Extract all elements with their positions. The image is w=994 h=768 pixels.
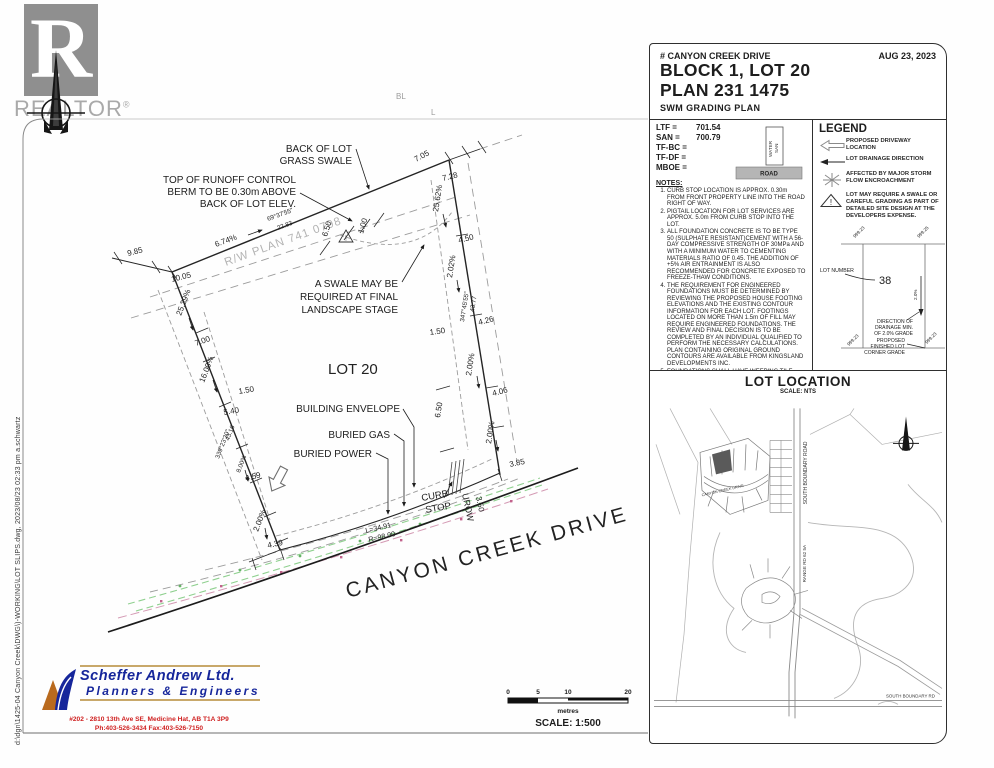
title-block-header: # CANYON CREEK DRIVE AUG 23, 2023 BLOCK … — [650, 44, 946, 120]
lot-location-map: SOUTH BOUNDARY ROAD RANGE RD 62 5A CANYO… — [650, 396, 946, 743]
svg-text:!: ! — [830, 198, 832, 207]
canyon-creek-subdivision — [700, 439, 770, 515]
svg-text:1.00: 1.00 — [356, 217, 369, 235]
svg-text:GRASS SWALE: GRASS SWALE — [280, 156, 353, 167]
fragment-text: L — [431, 108, 436, 117]
svg-text:999.25: 999.25 — [916, 224, 930, 238]
firm-phone: Ph:403-526-3434 Fax:403-526-7150 — [38, 725, 260, 734]
notes-heading: NOTES: — [656, 180, 808, 187]
svg-text:6.50: 6.50 — [433, 401, 444, 418]
title-block-panel: # CANYON CREEK DRIVE AUG 23, 2023 BLOCK … — [649, 43, 947, 744]
legend-item-label: LOT MAY REQUIRE A SWALE OR CAREFUL GRADI… — [846, 192, 942, 219]
map-label: RANGE RD 62 5A — [802, 544, 807, 582]
plan-subtitle: SWM GRADING PLAN — [660, 103, 936, 113]
svg-text:999.23: 999.23 — [852, 224, 866, 238]
note-item: THE REQUIREMENT FOR ENGINEERED FOUNDATIO… — [667, 283, 806, 368]
svg-text:10.05: 10.05 — [170, 270, 192, 284]
elevation-table: LTF =701.54 SAN =700.79 TF-BC = TF-DF = … — [656, 123, 808, 179]
map-label: SOUTH BOUNDARY ROAD — [803, 441, 809, 504]
proposed-driveway-arrow — [264, 464, 292, 495]
svg-text:SAN: SAN — [774, 144, 779, 153]
plan-sheet: d:\dgn\1425-04 Canyon Creek\DWG\)-WORKIN… — [0, 0, 994, 768]
svg-text:BACK OF LOT: BACK OF LOT — [286, 144, 352, 155]
subject-lot-highlight — [712, 450, 732, 475]
block-lot-title: BLOCK 1, LOT 20 — [660, 61, 936, 81]
svg-text:9.85: 9.85 — [126, 245, 144, 258]
svg-text:CORNER GRADE: CORNER GRADE — [864, 350, 906, 356]
svg-text:4.59: 4.59 — [244, 470, 262, 483]
svg-text:2.00%: 2.00% — [464, 352, 476, 376]
svg-text:TOP OF RUNOFF CONTROL: TOP OF RUNOFF CONTROL — [163, 175, 296, 186]
firm-name: Scheffer Andrew Ltd. — [80, 668, 260, 684]
svg-text:LOT NUMBER: LOT NUMBER — [820, 268, 854, 274]
svg-text:BURIED GAS: BURIED GAS — [328, 430, 390, 441]
svg-text:999.23: 999.23 — [846, 332, 860, 346]
firm-block: Scheffer Andrew Ltd. Planners & Engineer… — [38, 664, 260, 733]
svg-text:SCALE: 1:500: SCALE: 1:500 — [535, 718, 601, 729]
note-item: PIGTAIL LOCATION FOR LOT SERVICES ARE AP… — [667, 209, 806, 229]
svg-text:10: 10 — [564, 689, 572, 696]
svg-text:BURIED POWER: BURIED POWER — [294, 449, 372, 460]
map-label: SOUTH BOUNDARY RD — [886, 694, 935, 699]
svg-text:!: ! — [345, 236, 347, 243]
firm-tagline: Planners & Engineers — [80, 684, 260, 698]
driveway-icon — [819, 139, 846, 152]
svg-text:38: 38 — [879, 275, 891, 287]
urow-label: UROW — [460, 492, 476, 522]
svg-text:BUILDING ENVELOPE: BUILDING ENVELOPE — [296, 404, 400, 415]
legend-panel: LEGEND PROPOSED DRIVEWAY LOCATION LOT DR… — [812, 120, 946, 370]
fragment-text: BL — [396, 92, 406, 101]
right-of-way-dashed-lines — [131, 135, 522, 592]
svg-text:A SWALE MAY BE: A SWALE MAY BE — [315, 279, 399, 290]
curb-stop-ticks — [448, 459, 464, 496]
svg-text:16.00%: 16.00% — [197, 355, 215, 384]
water-san-road-diagram: WATER SAN ROAD — [732, 125, 806, 181]
legend-sample-lot-diagram: 999.23 999.25 999.23 999.23 LOT NUMBER 3… — [819, 224, 945, 358]
svg-text:ROAD: ROAD — [760, 172, 778, 178]
svg-text:1.50: 1.50 — [238, 384, 255, 396]
legend-item-label: LOT DRAINAGE DIRECTION — [846, 156, 924, 163]
drainage-direction-icon — [819, 157, 846, 167]
legend-item-label: AFFECTED BY MAJOR STORM FLOW ENCROACHMEN… — [846, 171, 942, 185]
svg-text:metres: metres — [557, 708, 579, 715]
note-item: CURB STOP LOCATION IS APPROX. 0.30m FROM… — [667, 188, 806, 208]
plan-number: PLAN 231 1475 — [660, 81, 936, 101]
warning-triangle-icon: ! — [819, 193, 846, 208]
notes-column: LTF =701.54 SAN =700.79 TF-BC = TF-DF = … — [650, 120, 812, 370]
svg-text:4.50: 4.50 — [457, 232, 475, 245]
storm-flow-icon — [819, 172, 846, 188]
svg-text:999.23: 999.23 — [924, 330, 938, 344]
svg-text:BACK OF LOT ELEV.: BACK OF LOT ELEV. — [200, 199, 296, 210]
note-item: ALL FOUNDATION CONCRETE IS TO BE TYPE 50… — [667, 229, 806, 281]
svg-text:22.83: 22.83 — [276, 220, 294, 232]
legend-heading: LEGEND — [819, 123, 942, 135]
sheet-border — [23, 119, 648, 733]
svg-text:25.29%: 25.29% — [174, 288, 192, 317]
lot-location-heading: LOT LOCATION — [650, 374, 946, 389]
plan-dimensions: 9.85 10.05 6.74% 69°37'55" 22.83 7.05 7.… — [126, 148, 526, 550]
svg-text:0: 0 — [506, 689, 510, 696]
svg-text:7.05: 7.05 — [413, 148, 431, 164]
map-north-arrow-icon — [893, 417, 919, 451]
lot-label: LOT 20 — [328, 361, 378, 378]
svg-text:7.28: 7.28 — [441, 170, 459, 183]
svg-text:REQUIRED AT FINAL: REQUIRED AT FINAL — [300, 292, 398, 303]
south-boundary-road — [789, 409, 800, 719]
svg-text:3.85: 3.85 — [509, 457, 527, 469]
svg-text:BERM TO BE 0.30m ABOVE: BERM TO BE 0.30m ABOVE — [167, 187, 296, 198]
svg-text:2.02%: 2.02% — [445, 254, 457, 278]
svg-text:25.62%: 25.62% — [431, 184, 444, 212]
svg-text:43.77: 43.77 — [469, 295, 478, 312]
svg-text:4.39: 4.39 — [267, 538, 285, 550]
swale-warning-icon: ! — [339, 230, 353, 243]
svg-text:20: 20 — [624, 689, 632, 696]
svg-text:WATER: WATER — [768, 140, 773, 157]
svg-text:5.40: 5.40 — [223, 405, 240, 417]
svg-text:LANDSCAPE STAGE: LANDSCAPE STAGE — [301, 305, 398, 316]
svg-text:339°23'30": 339°23'30" — [213, 428, 231, 459]
svg-text:OF 2.0% GRADE: OF 2.0% GRADE — [874, 331, 914, 337]
scale-bar: 0 5 10 20 metres SCALE: 1:500 — [500, 682, 660, 734]
lot-location-scale: SCALE: NTS — [650, 389, 946, 395]
svg-text:3.50: 3.50 — [474, 496, 486, 514]
note-item: FOUNDATIONS SHALL HAVE WEEPING TILE DRAI… — [667, 369, 806, 371]
lot-location-header: LOT LOCATION SCALE: NTS — [650, 371, 946, 396]
firm-address: #202 - 2810 13th Ave SE, Medicine Hat, A… — [38, 716, 260, 725]
notes-list: CURB STOP LOCATION IS APPROX. 0.30m FROM… — [656, 188, 808, 370]
svg-text:2.0%: 2.0% — [913, 289, 918, 299]
svg-text:5: 5 — [536, 689, 540, 696]
legend-item-label: PROPOSED DRIVEWAY LOCATION — [846, 138, 942, 152]
svg-text:4.26: 4.26 — [477, 314, 495, 327]
svg-text:1.50: 1.50 — [429, 326, 446, 337]
plan-date: AUG 23, 2023 — [878, 51, 936, 61]
firm-logo — [38, 664, 78, 714]
